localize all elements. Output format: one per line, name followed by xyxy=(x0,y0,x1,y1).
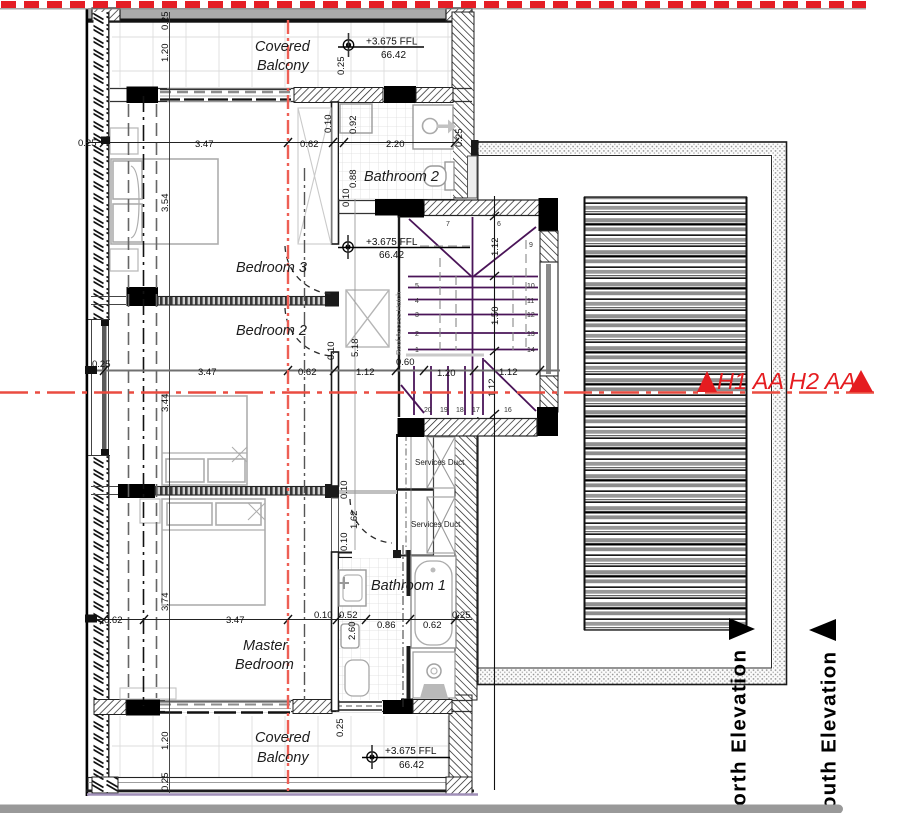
svg-text:0.62: 0.62 xyxy=(300,139,319,150)
svg-text:3: 3 xyxy=(415,312,419,319)
svg-text:+3.675 FFL: +3.675 FFL xyxy=(385,746,437,757)
svg-text:0.62: 0.62 xyxy=(104,615,123,626)
svg-text:20: 20 xyxy=(424,407,432,414)
svg-text:13: 13 xyxy=(527,331,535,338)
svg-text:66.42: 66.42 xyxy=(381,50,406,61)
svg-text:Bedroom 3: Bedroom 3 xyxy=(236,260,307,276)
svg-text:0.25: 0.25 xyxy=(78,138,97,149)
svg-text:0.92: 0.92 xyxy=(348,116,359,135)
svg-text:4: 4 xyxy=(415,298,419,305)
svg-text:0.25: 0.25 xyxy=(454,129,465,148)
svg-text:3.47: 3.47 xyxy=(195,139,214,150)
svg-text:19: 19 xyxy=(440,407,448,414)
svg-text:Master: Master xyxy=(243,638,288,654)
svg-text:1.20: 1.20 xyxy=(160,44,171,63)
svg-text:0.25: 0.25 xyxy=(336,57,347,76)
svg-text:2: 2 xyxy=(415,331,419,338)
svg-text:1.20: 1.20 xyxy=(160,732,171,751)
svg-text:North Elevation: North Elevation xyxy=(728,650,751,813)
svg-text:Roof Access Hatch: Roof Access Hatch xyxy=(394,292,403,355)
svg-text:H1 AA: H1 AA xyxy=(717,368,784,394)
svg-text:12: 12 xyxy=(527,312,535,319)
svg-text:0.25: 0.25 xyxy=(452,610,471,621)
svg-text:3.47: 3.47 xyxy=(198,367,217,378)
svg-text:H2 AA: H2 AA xyxy=(789,368,856,394)
svg-text:1: 1 xyxy=(415,347,419,354)
svg-text:Covered: Covered xyxy=(255,39,311,55)
svg-text:South Elevation: South Elevation xyxy=(818,652,841,813)
svg-text:1.50: 1.50 xyxy=(490,307,501,326)
svg-text:0.60: 0.60 xyxy=(396,357,415,368)
svg-text:Services Duct: Services Duct xyxy=(411,520,461,529)
svg-text:66.42: 66.42 xyxy=(399,760,424,771)
svg-text:14: 14 xyxy=(527,347,535,354)
svg-text:2.20: 2.20 xyxy=(386,139,405,150)
svg-text:0.10: 0.10 xyxy=(326,342,337,361)
svg-text:3.44: 3.44 xyxy=(160,394,171,413)
svg-text:3.47: 3.47 xyxy=(226,615,245,626)
svg-text:Services Duct: Services Duct xyxy=(415,458,465,467)
svg-text:2.60: 2.60 xyxy=(347,622,358,641)
svg-text:66.42: 66.42 xyxy=(379,250,404,261)
svg-text:1.12: 1.12 xyxy=(499,367,518,378)
svg-text:0.10: 0.10 xyxy=(339,481,350,500)
svg-text:0.25: 0.25 xyxy=(335,719,346,738)
svg-text:0.25: 0.25 xyxy=(160,12,171,31)
svg-text:0.10: 0.10 xyxy=(323,115,334,134)
svg-text:0.10: 0.10 xyxy=(314,610,333,621)
svg-text:5.18: 5.18 xyxy=(350,339,361,358)
svg-text:1.62: 1.62 xyxy=(349,511,360,530)
svg-text:0.10: 0.10 xyxy=(339,533,350,552)
svg-text:11: 11 xyxy=(527,298,534,305)
svg-text:0.88: 0.88 xyxy=(348,170,359,189)
svg-text:+3.675 FFL: +3.675 FFL xyxy=(366,37,418,48)
svg-text:Bathroom 2: Bathroom 2 xyxy=(364,169,439,185)
svg-text:10: 10 xyxy=(527,283,535,290)
svg-text:Covered: Covered xyxy=(255,730,311,746)
svg-text:0.86: 0.86 xyxy=(377,620,396,631)
svg-text:+3.675 FFL: +3.675 FFL xyxy=(366,237,418,248)
svg-text:0.25: 0.25 xyxy=(160,773,171,792)
svg-text:0.62: 0.62 xyxy=(298,367,317,378)
svg-text:Balcony: Balcony xyxy=(257,750,309,766)
svg-text:0.25: 0.25 xyxy=(92,359,111,370)
svg-text:1.12: 1.12 xyxy=(487,379,498,398)
svg-text:Bathroom 1: Bathroom 1 xyxy=(371,578,446,594)
svg-text:9: 9 xyxy=(529,242,533,249)
svg-text:18: 18 xyxy=(456,407,464,414)
svg-text:17: 17 xyxy=(472,407,480,414)
svg-text:Bedroom 2: Bedroom 2 xyxy=(236,323,307,339)
svg-text:Balcony: Balcony xyxy=(257,58,309,74)
svg-text:7: 7 xyxy=(446,221,450,228)
svg-text:6: 6 xyxy=(497,221,501,228)
svg-text:16: 16 xyxy=(504,407,512,414)
svg-text:1.20: 1.20 xyxy=(437,368,456,379)
svg-text:0.62: 0.62 xyxy=(423,620,442,631)
svg-text:1.12: 1.12 xyxy=(490,238,501,257)
svg-text:3.54: 3.54 xyxy=(160,194,171,213)
svg-text:3.74: 3.74 xyxy=(160,593,171,612)
svg-text:0.10: 0.10 xyxy=(341,189,352,208)
svg-text:Bedroom: Bedroom xyxy=(235,657,294,673)
svg-text:1.12: 1.12 xyxy=(356,367,375,378)
svg-text:5: 5 xyxy=(415,283,419,290)
svg-text:0.52: 0.52 xyxy=(339,610,358,621)
